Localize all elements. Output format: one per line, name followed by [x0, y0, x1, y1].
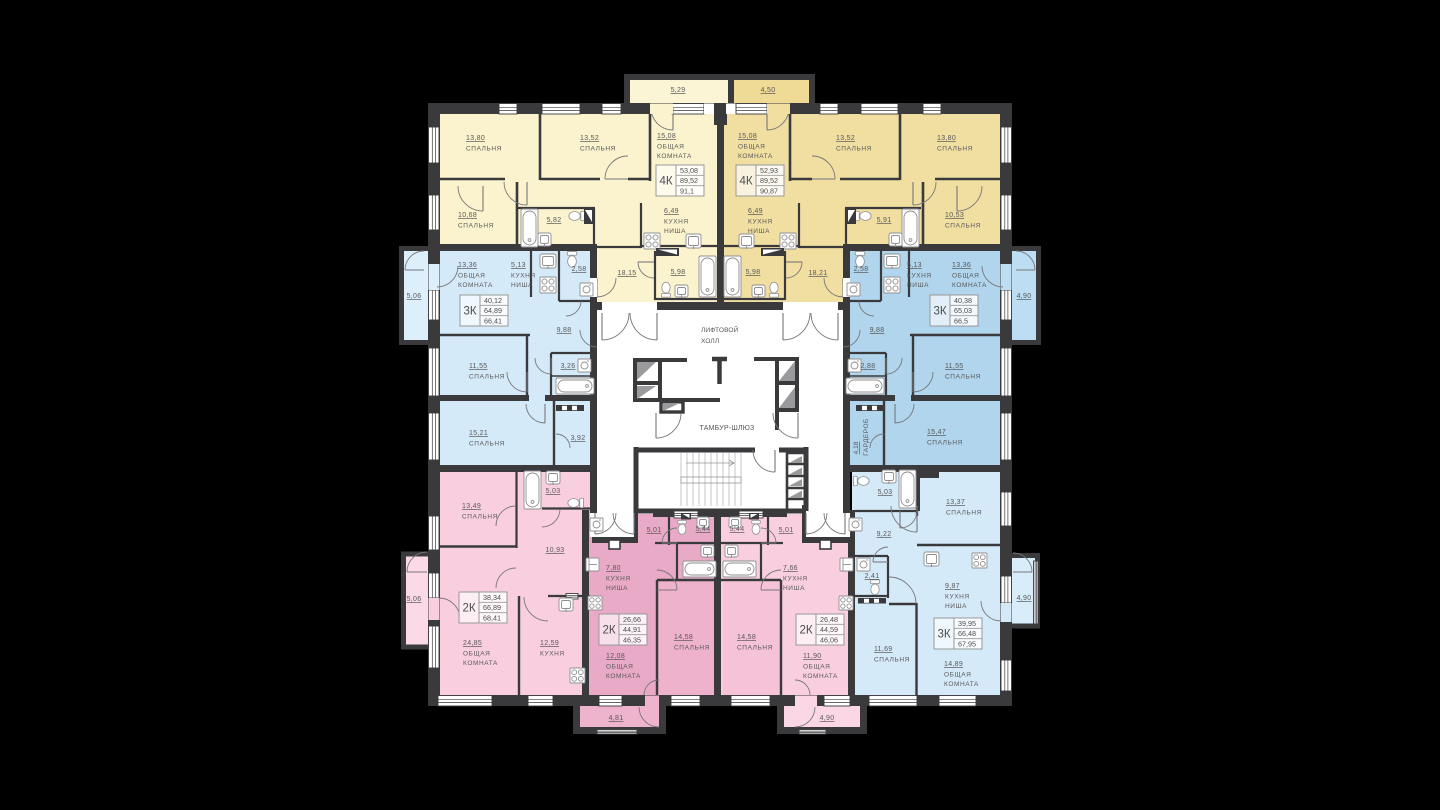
svg-text:12,08: 12,08 [606, 653, 625, 660]
svg-text:10,68: 10,68 [458, 212, 477, 219]
svg-text:15,21: 15,21 [469, 430, 488, 437]
svg-text:5,06: 5,06 [407, 293, 422, 300]
svg-text:5,01: 5,01 [647, 527, 662, 534]
svg-text:44,91: 44,91 [623, 625, 641, 634]
svg-text:КОМНАТА: КОМНАТА [463, 660, 498, 667]
svg-text:12,59: 12,59 [540, 640, 559, 647]
svg-text:40,38: 40,38 [954, 296, 972, 305]
svg-text:13,52: 13,52 [836, 135, 855, 142]
svg-text:КУХНЯ: КУХНЯ [907, 273, 932, 280]
svg-text:7,80: 7,80 [606, 565, 621, 572]
svg-text:3К: 3К [463, 306, 476, 318]
svg-text:ОБЩАЯ: ОБЩАЯ [952, 273, 979, 280]
svg-text:13,80: 13,80 [466, 135, 485, 142]
svg-text:5,01: 5,01 [779, 527, 794, 534]
svg-text:5,44: 5,44 [730, 526, 745, 533]
svg-text:СПАЛЬНЯ: СПАЛЬНЯ [945, 374, 981, 381]
svg-text:6,49: 6,49 [664, 208, 679, 215]
svg-text:7,66: 7,66 [783, 565, 798, 572]
svg-text:2,41: 2,41 [865, 573, 880, 580]
svg-text:2,58: 2,58 [572, 266, 587, 273]
svg-text:5,91: 5,91 [877, 217, 892, 224]
svg-text:5,03: 5,03 [546, 488, 561, 495]
svg-text:40,12: 40,12 [484, 296, 502, 305]
svg-text:КУХНЯ: КУХНЯ [540, 651, 565, 658]
svg-text:4,90: 4,90 [1017, 595, 1032, 602]
svg-text:64,89: 64,89 [484, 306, 502, 315]
svg-text:89,52: 89,52 [760, 176, 778, 185]
svg-text:4,50: 4,50 [761, 87, 776, 94]
svg-text:13,36: 13,36 [458, 262, 477, 269]
svg-text:ОБЩАЯ: ОБЩАЯ [738, 144, 765, 151]
svg-text:ЛИФТОВОЙ: ЛИФТОВОЙ [701, 325, 739, 334]
svg-text:КОМНАТА: КОМНАТА [952, 282, 987, 289]
svg-text:26,66: 26,66 [623, 615, 641, 624]
svg-text:4,18: 4,18 [853, 441, 860, 454]
svg-text:5,82: 5,82 [547, 217, 562, 224]
svg-text:КУХНЯ: КУХНЯ [664, 219, 689, 226]
svg-text:67,95: 67,95 [958, 639, 976, 648]
svg-text:11,90: 11,90 [803, 653, 822, 660]
svg-text:ОБЩАЯ: ОБЩАЯ [458, 273, 485, 280]
svg-text:НИША: НИША [748, 228, 770, 235]
svg-text:46,06: 46,06 [820, 635, 838, 644]
svg-text:ОБЩАЯ: ОБЩАЯ [803, 664, 830, 671]
svg-text:СПАЛЬНЯ: СПАЛЬНЯ [945, 223, 981, 230]
svg-text:СПАЛЬНЯ: СПАЛЬНЯ [466, 146, 502, 153]
svg-text:13,36: 13,36 [952, 262, 971, 269]
svg-text:СПАЛЬНЯ: СПАЛЬНЯ [874, 657, 910, 664]
svg-text:КОМНАТА: КОМНАТА [606, 673, 641, 680]
svg-text:ОБЩАЯ: ОБЩАЯ [944, 672, 971, 679]
svg-text:15,08: 15,08 [657, 133, 676, 140]
svg-text:90,87: 90,87 [760, 186, 778, 195]
svg-text:3,92: 3,92 [571, 435, 586, 442]
svg-text:10,93: 10,93 [545, 547, 564, 554]
svg-text:4,81: 4,81 [609, 715, 624, 722]
svg-text:39,95: 39,95 [958, 619, 976, 628]
svg-text:5,13: 5,13 [511, 262, 526, 269]
svg-text:91,1: 91,1 [680, 186, 694, 195]
svg-text:14,58: 14,58 [674, 634, 693, 641]
svg-text:4,90: 4,90 [820, 715, 835, 722]
svg-text:ОБЩАЯ: ОБЩАЯ [657, 144, 684, 151]
svg-text:3К: 3К [937, 629, 950, 641]
svg-text:3К: 3К [933, 306, 946, 318]
svg-text:10,53: 10,53 [945, 212, 964, 219]
svg-text:СПАЛЬНЯ: СПАЛЬНЯ [458, 223, 494, 230]
svg-text:5,98: 5,98 [671, 269, 686, 276]
svg-text:КОМНАТА: КОМНАТА [657, 153, 692, 160]
svg-text:КУХНЯ: КУХНЯ [606, 576, 631, 583]
svg-text:15,47: 15,47 [927, 429, 946, 436]
svg-text:13,37: 13,37 [946, 499, 965, 506]
svg-text:КОМНАТА: КОМНАТА [944, 681, 979, 688]
svg-text:5,06: 5,06 [407, 596, 422, 603]
svg-text:СПАЛЬНЯ: СПАЛЬНЯ [469, 374, 505, 381]
svg-text:НИША: НИША [907, 282, 929, 289]
svg-text:53,08: 53,08 [680, 166, 698, 175]
svg-text:5,03: 5,03 [878, 489, 893, 496]
svg-text:18,21: 18,21 [808, 270, 827, 277]
svg-text:КУХНЯ: КУХНЯ [748, 219, 773, 226]
svg-text:9,87: 9,87 [945, 583, 960, 590]
svg-text:46,35: 46,35 [623, 635, 641, 644]
svg-text:4К: 4К [739, 176, 752, 188]
svg-text:65,03: 65,03 [954, 306, 972, 315]
svg-text:СПАЛЬНЯ: СПАЛЬНЯ [737, 645, 773, 652]
svg-text:КОМНАТА: КОМНАТА [458, 282, 493, 289]
svg-text:СПАЛЬНЯ: СПАЛЬНЯ [946, 510, 982, 517]
svg-text:СПАЛЬНЯ: СПАЛЬНЯ [462, 514, 498, 521]
svg-text:ТАМБУР-ШЛЮЗ: ТАМБУР-ШЛЮЗ [700, 425, 755, 432]
svg-text:2К: 2К [602, 625, 615, 637]
svg-text:9,88: 9,88 [870, 327, 885, 334]
svg-text:6,49: 6,49 [748, 208, 763, 215]
svg-text:11,55: 11,55 [469, 363, 488, 370]
svg-text:СПАЛЬНЯ: СПАЛЬНЯ [469, 441, 505, 448]
svg-text:13,49: 13,49 [462, 503, 481, 510]
svg-text:89,52: 89,52 [680, 176, 698, 185]
svg-text:КУХНЯ: КУХНЯ [945, 594, 970, 601]
svg-text:ОБЩАЯ: ОБЩАЯ [606, 664, 633, 671]
svg-text:5,98: 5,98 [746, 269, 761, 276]
svg-text:11,55: 11,55 [945, 363, 964, 370]
svg-text:4,90: 4,90 [1017, 293, 1032, 300]
svg-text:14,89: 14,89 [944, 661, 963, 668]
svg-text:9,22: 9,22 [877, 531, 892, 538]
svg-text:66,41: 66,41 [484, 316, 502, 325]
svg-text:КУХНЯ: КУХНЯ [511, 273, 536, 280]
svg-text:26,48: 26,48 [820, 615, 838, 624]
svg-text:14,58: 14,58 [737, 634, 756, 641]
svg-text:3,26: 3,26 [561, 363, 576, 370]
svg-text:СПАЛЬНЯ: СПАЛЬНЯ [580, 146, 616, 153]
svg-text:5,29: 5,29 [671, 87, 686, 94]
svg-text:11,69: 11,69 [874, 646, 893, 653]
svg-text:18,15: 18,15 [617, 270, 636, 277]
svg-text:КОМНАТА: КОМНАТА [803, 673, 838, 680]
svg-text:5,13: 5,13 [907, 262, 922, 269]
svg-text:2К: 2К [462, 603, 475, 615]
svg-text:5,44: 5,44 [696, 526, 711, 533]
svg-text:13,80: 13,80 [937, 135, 956, 142]
svg-text:24,85: 24,85 [463, 640, 482, 647]
svg-text:НИША: НИША [783, 585, 805, 592]
svg-text:НИША: НИША [511, 282, 533, 289]
svg-text:КУХНЯ: КУХНЯ [783, 576, 808, 583]
svg-text:СПАЛЬНЯ: СПАЛЬНЯ [937, 146, 973, 153]
svg-text:15,08: 15,08 [738, 133, 757, 140]
svg-text:НИША: НИША [664, 228, 686, 235]
svg-text:2,58: 2,58 [854, 266, 869, 273]
svg-text:НИША: НИША [606, 585, 628, 592]
svg-text:13,52: 13,52 [580, 135, 599, 142]
svg-text:ХОЛЛ: ХОЛЛ [701, 338, 719, 345]
svg-text:КОМНАТА: КОМНАТА [738, 153, 773, 160]
svg-text:СПАЛЬНЯ: СПАЛЬНЯ [927, 440, 963, 447]
svg-text:68,41: 68,41 [483, 613, 501, 622]
svg-text:52,93: 52,93 [760, 166, 778, 175]
svg-text:ОБЩАЯ: ОБЩАЯ [463, 651, 490, 658]
svg-text:СПАЛЬНЯ: СПАЛЬНЯ [674, 645, 710, 652]
svg-text:38,34: 38,34 [483, 593, 501, 602]
svg-text:44,59: 44,59 [820, 625, 838, 634]
svg-text:2,88: 2,88 [861, 363, 876, 370]
svg-text:4К: 4К [659, 176, 672, 188]
svg-text:ГАРДЕРОБ: ГАРДЕРОБ [863, 418, 870, 456]
svg-text:66,5: 66,5 [954, 316, 968, 325]
svg-text:9,88: 9,88 [557, 327, 572, 334]
svg-text:НИША: НИША [945, 603, 967, 610]
svg-text:2К: 2К [799, 625, 812, 637]
svg-text:СПАЛЬНЯ: СПАЛЬНЯ [836, 146, 872, 153]
svg-text:66,48: 66,48 [958, 629, 976, 638]
svg-text:66,89: 66,89 [483, 603, 501, 612]
